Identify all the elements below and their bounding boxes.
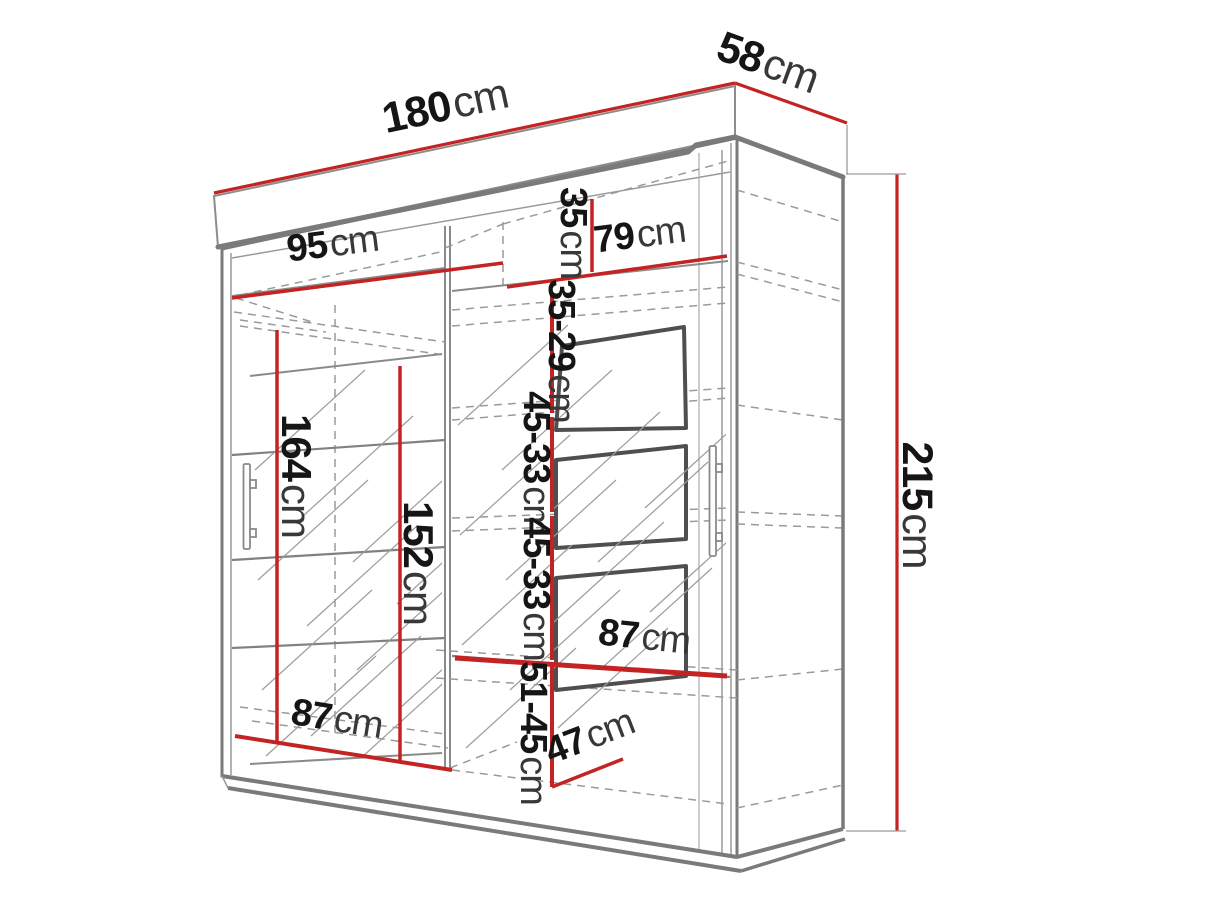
side-trace-dashed [737,405,843,420]
dim-top-shelf-drop: 35cm [552,187,594,279]
side-trace-dashed [737,669,843,680]
dim-height-total: 215cm [846,174,941,831]
side-trace-dashed [737,512,843,516]
dim-label-45-33-b: 45-33cm [515,517,557,661]
dim-label-45-33-a: 45-33cm [515,391,557,535]
dim-right-gap-middle-2: 45-33cm [515,516,557,661]
side-trace-dashed [737,524,843,528]
side-trace-dashed [737,262,843,290]
diagram-canvas: 180cm 58cm 215cm 95cm 79cm 35cm 35- [0,0,1232,924]
right-handle-tab-top [716,464,722,472]
left-door-handle [244,464,251,549]
crown-side-edge [735,137,843,177]
side-trace-dashed [737,274,843,302]
dim-label-35: 35cm [552,187,594,279]
dim-label-152: 152cm [395,501,442,625]
wardrobe-dimension-diagram: 180cm 58cm 215cm 95cm 79cm 35cm 35- [0,0,1232,924]
side-trace-dashed [737,190,843,222]
dim-label-164: 164cm [273,414,320,538]
dim-right-gap-middle-1: 45-33cm [515,391,557,535]
side-trace-dashed [737,785,843,808]
glass-panel-middle [556,446,686,548]
right-door-handle [710,446,717,556]
left-handle-tab-top [250,480,256,488]
dim-label-215: 215cm [893,441,941,568]
dim-label-180: 180cm [378,70,512,143]
left-handle-tab-bottom [250,529,256,537]
right-handle-tab-bottom [716,533,722,541]
